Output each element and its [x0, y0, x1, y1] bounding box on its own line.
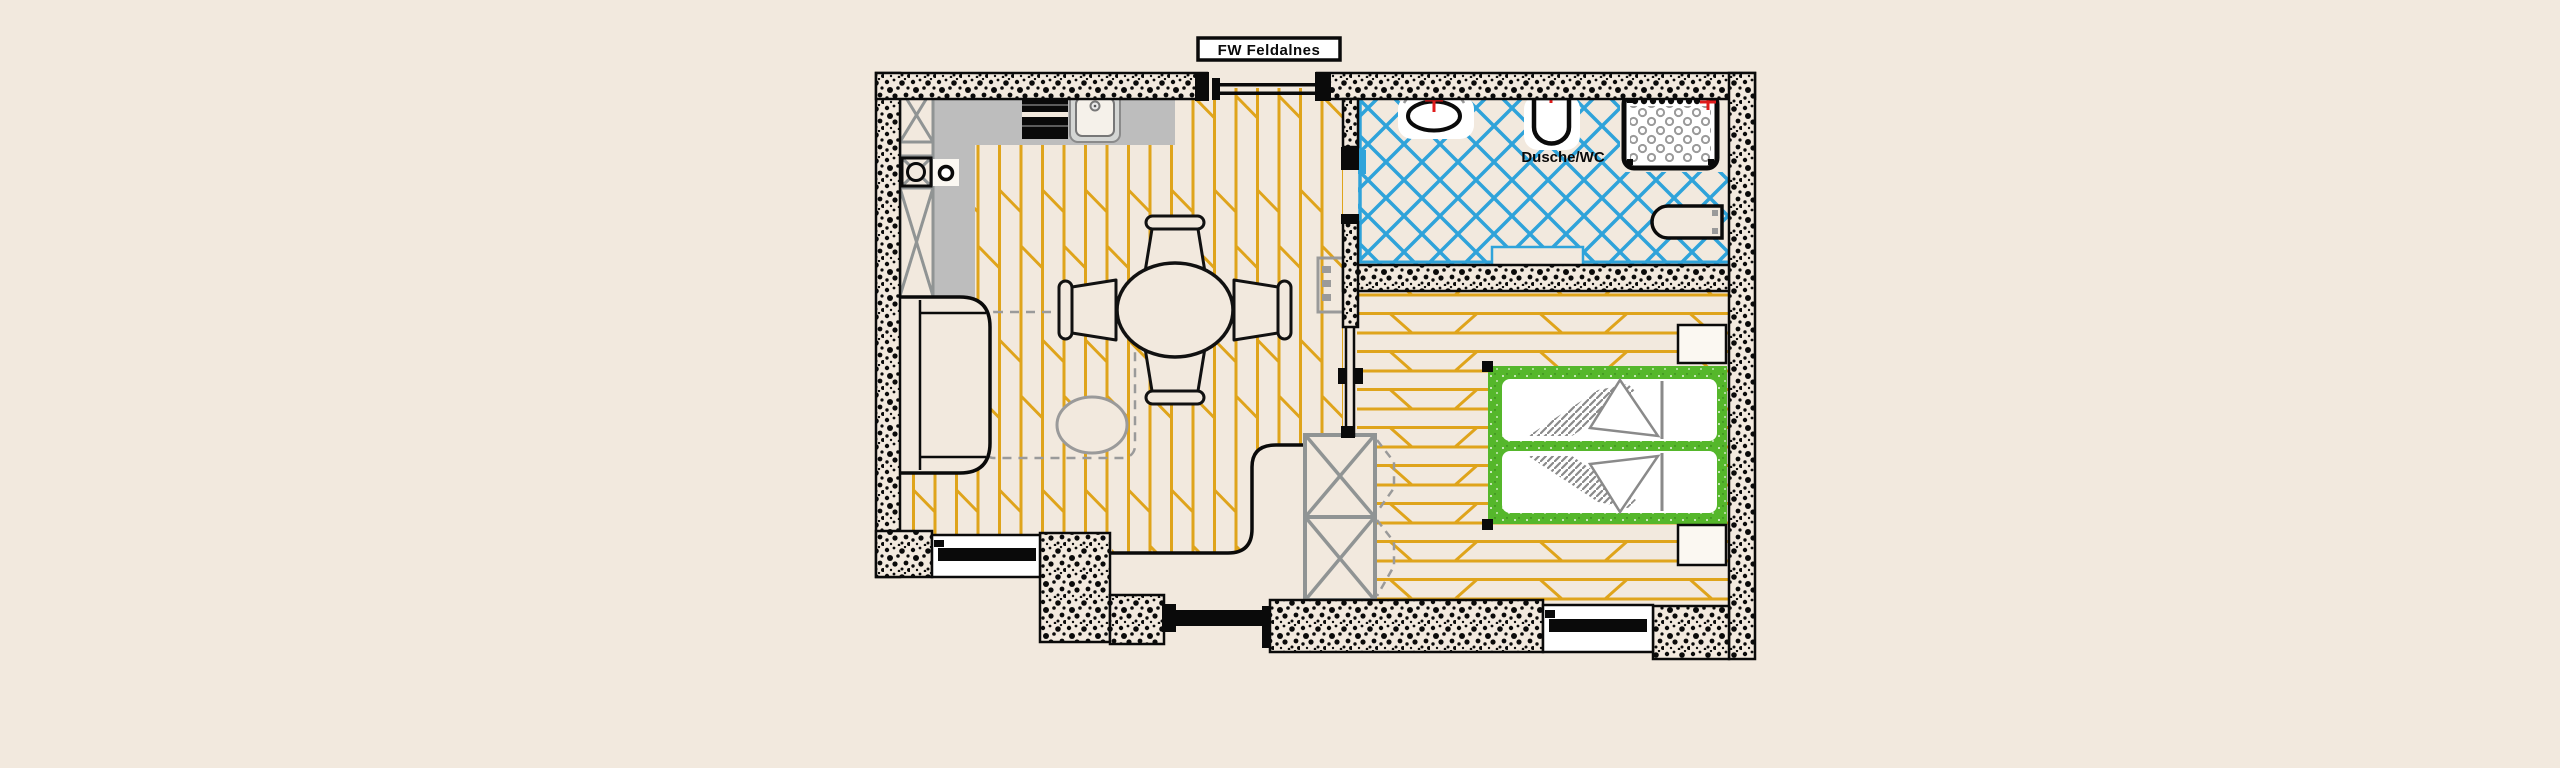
wall-step-a [1040, 533, 1110, 642]
wall-bathroom-south [1343, 265, 1729, 291]
stove [1022, 97, 1068, 139]
wall-bath-partition-lower [1343, 222, 1358, 327]
wardrobe [1305, 435, 1375, 600]
wall-south-bedroom [1270, 600, 1543, 652]
towel-radiator [1652, 206, 1722, 238]
door-leaf-cap [1212, 78, 1220, 100]
wall-south-west [876, 531, 932, 577]
bathroom-door-leaf [1358, 150, 1366, 174]
sofa [893, 297, 990, 473]
wall-west [876, 73, 900, 577]
dining-chair-east [1234, 280, 1291, 340]
side-table [1057, 397, 1127, 453]
plan-title: FW Feldalnes [1218, 42, 1321, 59]
wall-north-left [876, 73, 1207, 99]
wall-north-right [1317, 73, 1755, 99]
shower [1620, 94, 1729, 172]
wall-step-b [1110, 595, 1164, 644]
title-box: FW Feldalnes [1198, 38, 1340, 60]
wall-bath-partition-upper [1343, 99, 1358, 147]
wall-east [1729, 73, 1755, 659]
bathroom-label: Dusche/WC [1521, 149, 1605, 166]
door-bottom [1162, 604, 1270, 648]
nightstand-bottom [1678, 525, 1726, 565]
dining-table [1117, 263, 1233, 357]
wall-south-east-corner [1653, 606, 1729, 659]
window-southwest [932, 535, 1040, 577]
washer-knob-icon [940, 167, 953, 180]
double-bed [1482, 361, 1727, 530]
window-southeast [1543, 605, 1653, 652]
nightstand-top [1678, 325, 1726, 363]
floorplan-drawing: FW Feldalnes Dusche/WC [0, 0, 2560, 768]
bathroom-door-jamb-bottom [1341, 214, 1359, 224]
dining-chair-west [1059, 280, 1116, 340]
bathroom-door-jamb-top [1341, 147, 1359, 170]
kitchen-cabinets [900, 88, 933, 298]
floorplan-page: FW Feldalnes Dusche/WC [0, 0, 2560, 768]
